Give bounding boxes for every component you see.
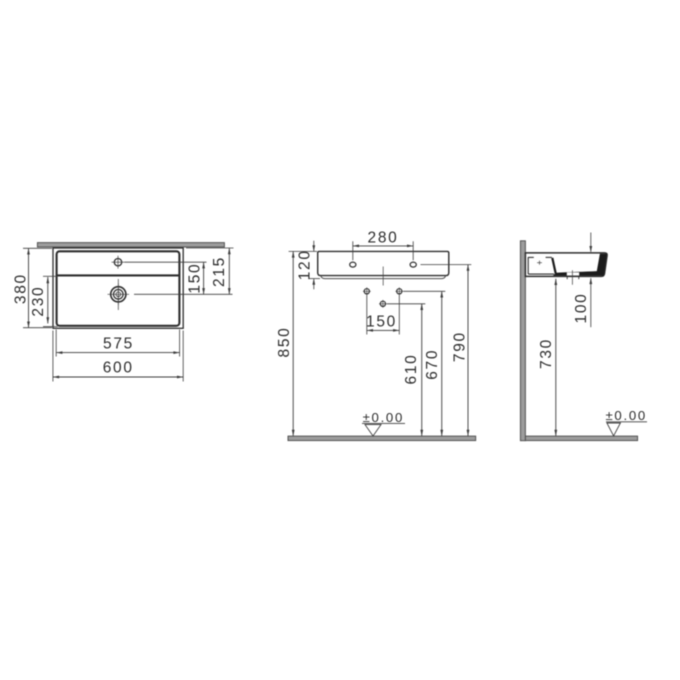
svg-text:670: 670: [424, 349, 441, 380]
svg-text:100: 100: [573, 293, 590, 324]
svg-text:215: 215: [211, 256, 228, 287]
svg-text:150: 150: [366, 314, 397, 331]
svg-text:600: 600: [103, 360, 134, 377]
svg-text:575: 575: [103, 335, 134, 352]
svg-text:730: 730: [538, 338, 555, 369]
svg-text:120: 120: [296, 249, 313, 280]
svg-text:150: 150: [187, 263, 204, 294]
svg-text:380: 380: [12, 273, 29, 304]
svg-text:790: 790: [452, 331, 469, 362]
svg-text:230: 230: [30, 286, 47, 317]
svg-text:850: 850: [276, 327, 293, 358]
svg-text:±0.00: ±0.00: [363, 410, 404, 425]
svg-text:±0.00: ±0.00: [605, 408, 646, 423]
svg-text:280: 280: [368, 230, 399, 247]
svg-text:610: 610: [403, 354, 420, 385]
